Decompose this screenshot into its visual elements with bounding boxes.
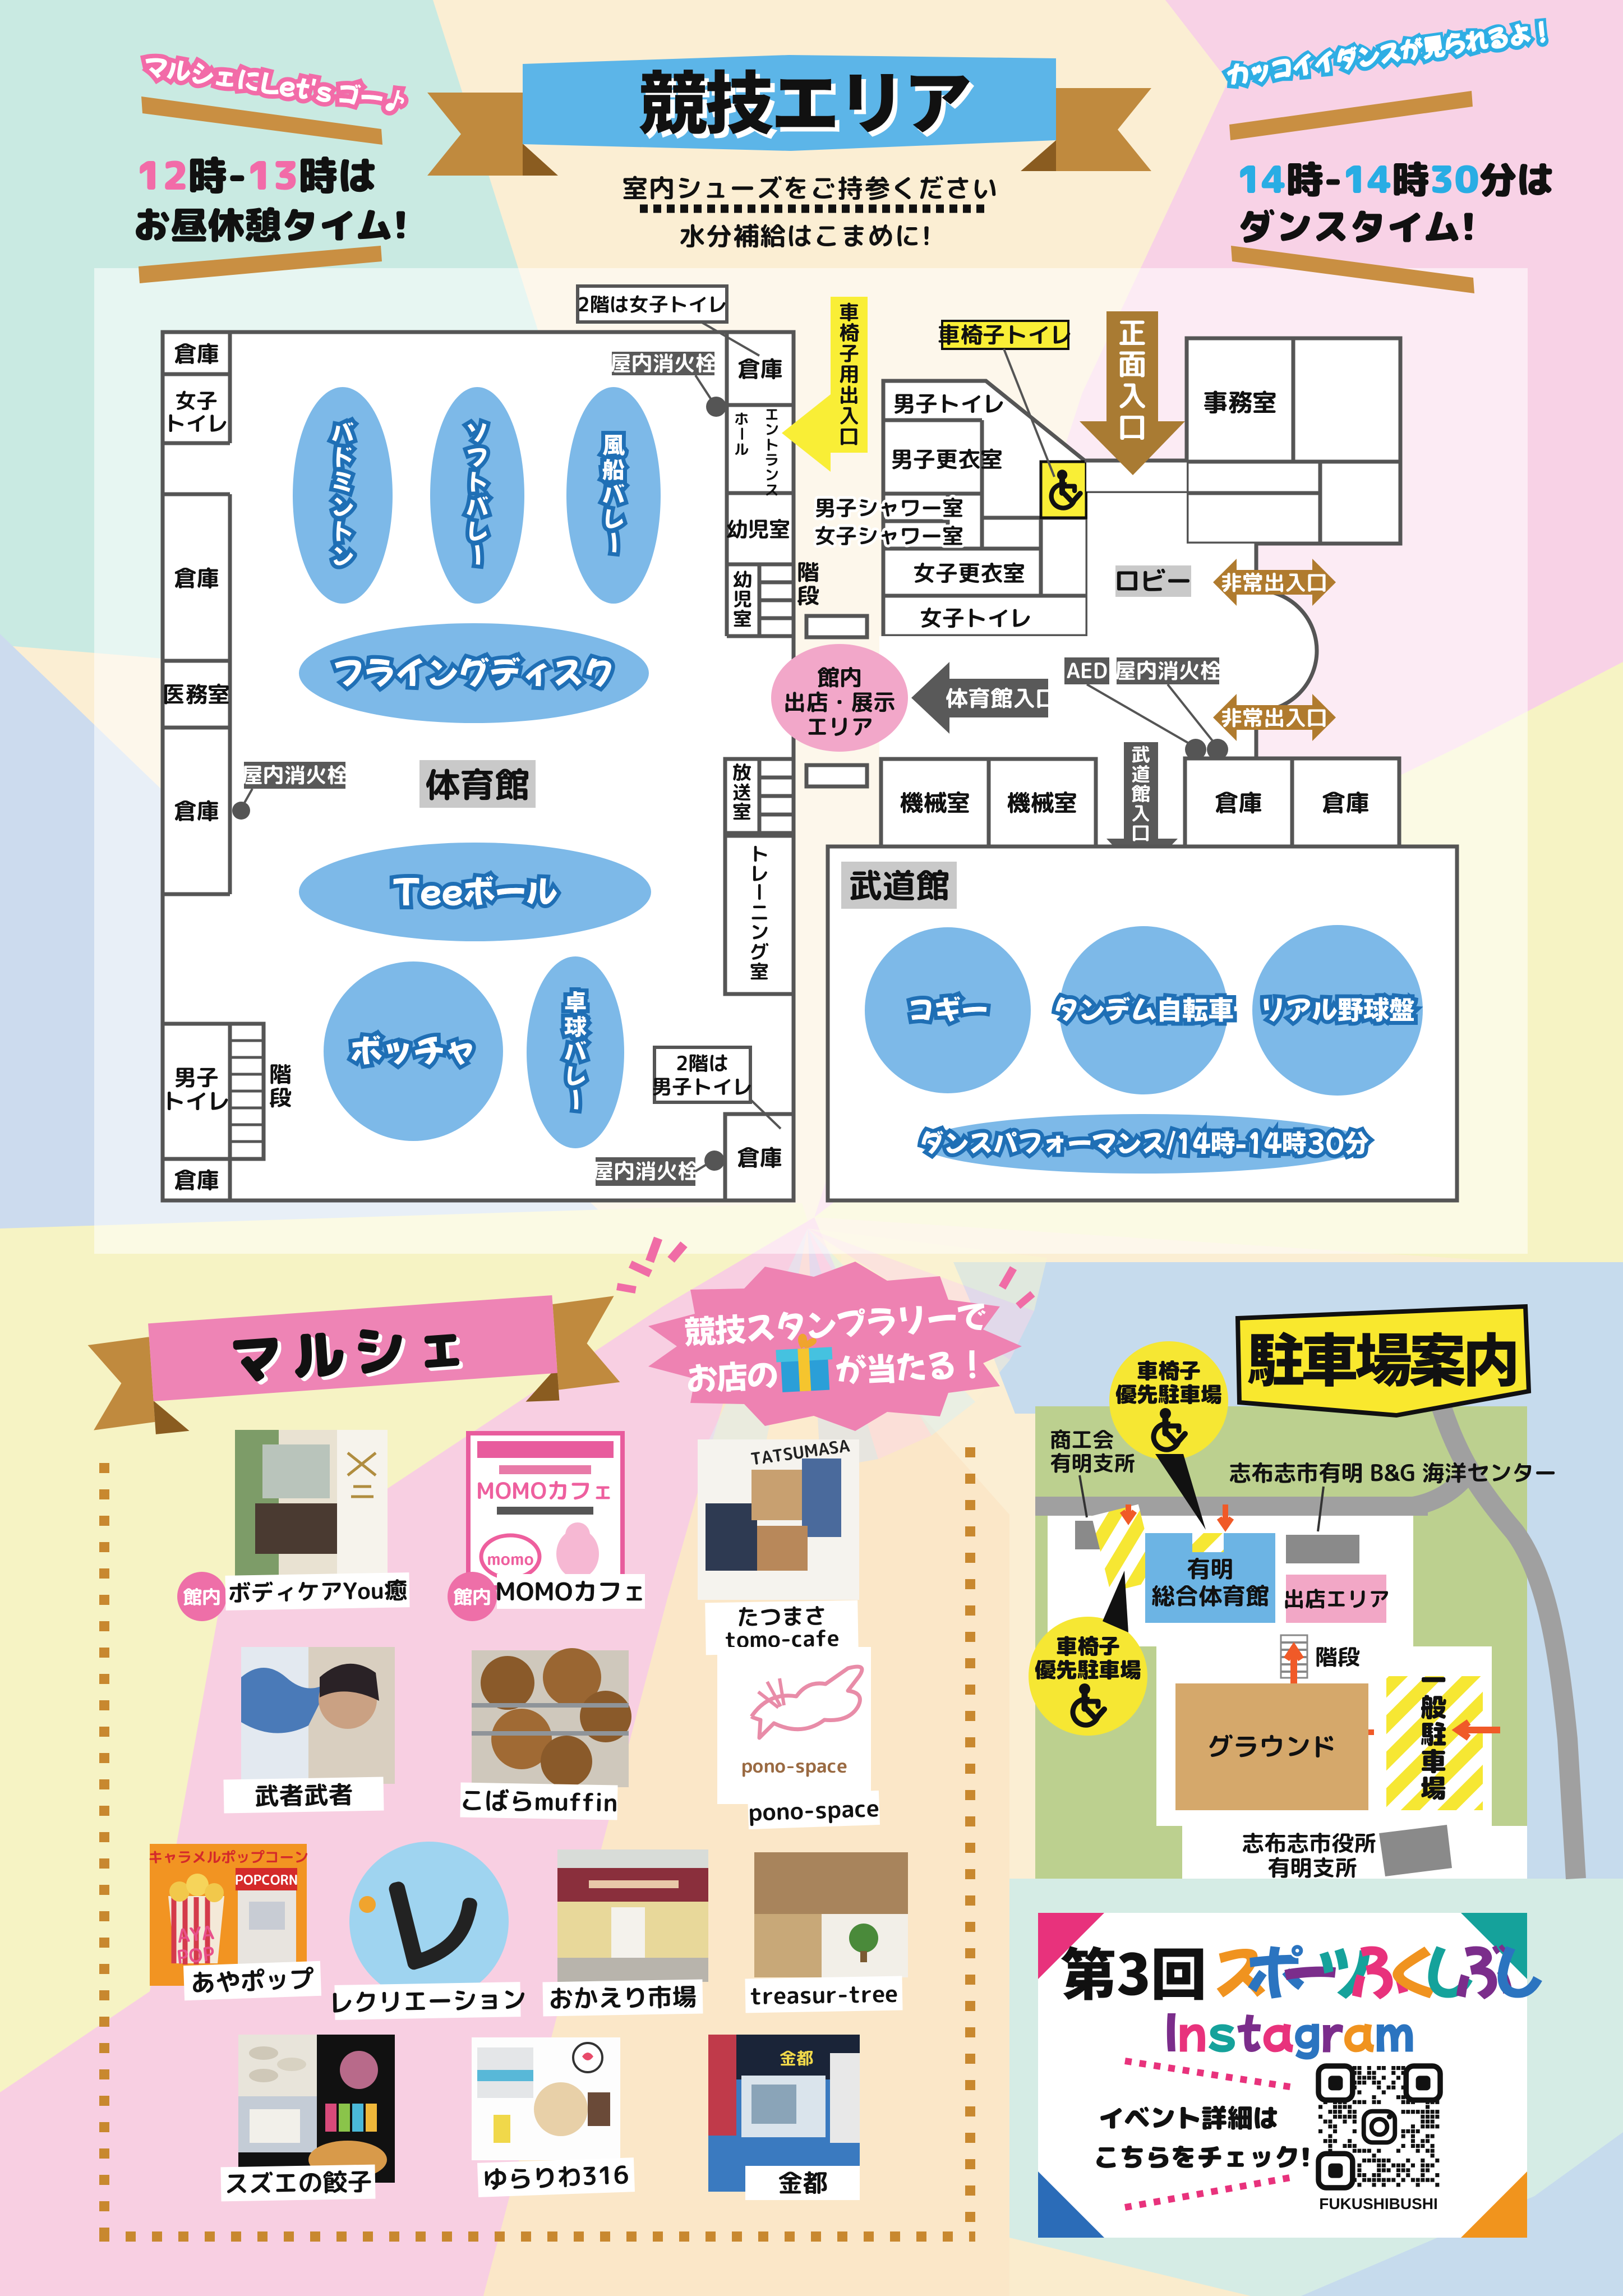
svg-text:ー: ー	[463, 544, 495, 566]
svg-text:館内: 館内	[453, 1583, 491, 1610]
svg-text:段: 段	[269, 1082, 292, 1113]
svg-text:ス: ス	[764, 480, 779, 500]
svg-text:体育館: 体育館	[425, 760, 529, 808]
svg-text:女子トイレ: 女子トイレ	[920, 602, 1032, 633]
svg-text:口: 口	[1131, 819, 1150, 846]
svg-text:タンデム自転車: タンデム自転車	[1053, 990, 1234, 1027]
svg-text:男子トイレ: 男子トイレ	[893, 388, 1005, 419]
svg-text:機械室: 機械室	[1007, 786, 1077, 819]
svg-text:倉庫: 倉庫	[174, 338, 219, 369]
svg-text:イベント詳細は: イベント詳細は	[1098, 2100, 1279, 2136]
svg-text:こちらをチェック!: こちらをチェック!	[1094, 2139, 1311, 2175]
svg-text:POPCORN: POPCORN	[235, 1870, 298, 1889]
svg-text:ゆらりわ316: ゆらりわ316	[482, 2157, 629, 2197]
svg-text:女子シャワー室: 女子シャワー室	[814, 521, 963, 551]
svg-text:屋内消火栓: 屋内消火栓	[241, 760, 348, 790]
svg-text:エリア: エリア	[806, 711, 873, 742]
svg-text:女子更衣室: 女子更衣室	[913, 557, 1025, 588]
svg-text:し: し	[1490, 1927, 1548, 2012]
svg-text:AED: AED	[1066, 656, 1108, 685]
svg-text:屋内消火栓: 屋内消火栓	[592, 1156, 699, 1186]
svg-text:室: 室	[750, 958, 769, 984]
svg-text:倉庫: 倉庫	[737, 1142, 782, 1173]
svg-text:有明支所: 有明支所	[1267, 1852, 1357, 1883]
svg-text:金都: 金都	[780, 2046, 813, 2070]
svg-text:リアル野球盤: リアル野球盤	[1260, 990, 1415, 1027]
svg-text:グラウンド: グラウンド	[1207, 1728, 1336, 1764]
svg-text:Teeボール: Teeボール	[393, 867, 558, 913]
svg-text:段: 段	[797, 579, 819, 611]
svg-text:事務室: 事務室	[1203, 385, 1277, 420]
svg-text:2階は女子トイレ: 2階は女子トイレ	[577, 291, 727, 318]
svg-text:室: 室	[732, 798, 751, 825]
svg-text:倉庫: 倉庫	[174, 1164, 219, 1195]
svg-text:男子トイレ: 男子トイレ	[652, 1072, 753, 1101]
svg-text:Instagram: Instagram	[1165, 1999, 1415, 2062]
svg-text:キャラメルポップコーン: キャラメルポップコーン	[148, 1847, 308, 1867]
svg-text:非常出入口: 非常出入口	[1221, 703, 1327, 733]
svg-text:が当たる！: が当たる！	[834, 1340, 988, 1393]
svg-text:FUKUSHIBUSHI: FUKUSHIBUSHI	[1319, 2195, 1438, 2212]
svg-text:レ: レ	[602, 501, 625, 534]
svg-text:treasur-tree: treasur-tree	[749, 1977, 898, 2013]
svg-text:場: 場	[1421, 1770, 1446, 1806]
svg-text:機械室: 機械室	[900, 786, 970, 819]
svg-text:幼児室: 幼児室	[726, 514, 790, 544]
svg-text:有明支所: 有明支所	[1050, 1448, 1135, 1478]
svg-text:倉庫: 倉庫	[174, 795, 219, 826]
svg-text:ー: ー	[599, 531, 631, 554]
svg-text:武道館: 武道館	[849, 862, 949, 909]
svg-text:あやポップ: あやポップ	[190, 1962, 315, 2000]
svg-text:フライングディスク: フライングディスク	[333, 648, 615, 694]
svg-text:男子シャワー室: 男子シャワー室	[814, 493, 963, 523]
svg-text:倉庫: 倉庫	[1322, 786, 1369, 819]
svg-text:ボッチャ: ボッチャ	[351, 1027, 476, 1072]
svg-text:倉庫: 倉庫	[737, 353, 782, 384]
svg-text:倉庫: 倉庫	[1215, 786, 1262, 819]
svg-text:トイレ: トイレ	[164, 408, 228, 438]
svg-text:こばらmuffin: こばらmuffin	[460, 1783, 618, 1820]
svg-text:コギー: コギー	[907, 988, 988, 1028]
svg-text:お店の: お店の	[685, 1350, 778, 1400]
svg-text:室: 室	[733, 605, 752, 632]
svg-text:pono-space: pono-space	[748, 1792, 879, 1829]
svg-text:レ: レ	[564, 1059, 587, 1091]
svg-text:武者武者: 武者武者	[254, 1777, 353, 1813]
svg-text:スズエの餃子: スズエの餃子	[224, 2165, 372, 2202]
svg-text:口: 口	[1118, 406, 1147, 447]
svg-text:おかえり市場: おかえり市場	[548, 1980, 697, 2017]
svg-text:momo: momo	[487, 1547, 534, 1571]
svg-text:倉庫: 倉庫	[174, 562, 219, 593]
svg-text:MOMOカフェ: MOMOカフェ	[495, 1575, 647, 1609]
svg-text:ダンスパフォーマンス/14時-14時30分: ダンスパフォーマンス/14時-14時30分	[919, 1124, 1369, 1159]
svg-text:ロビー: ロビー	[1114, 563, 1192, 599]
svg-text:優先駐車場: 優先駐車場	[1035, 1655, 1141, 1685]
svg-text:優先駐車場: 優先駐車場	[1115, 1379, 1222, 1409]
svg-text:出店エリア: 出店エリア	[1283, 1584, 1390, 1614]
svg-text:pono-space: pono-space	[741, 1752, 847, 1779]
svg-text:男子更衣室: 男子更衣室	[891, 443, 1003, 475]
svg-text:階段: 階段	[1315, 1641, 1360, 1672]
svg-text:志布志市有明 B&G 海洋センター: 志布志市有明 B&G 海洋センター	[1229, 1457, 1557, 1488]
svg-text:ー: ー	[561, 1088, 593, 1111]
svg-text:口: 口	[839, 422, 859, 450]
svg-text:館内: 館内	[183, 1583, 221, 1610]
svg-text:レクリエーション: レクリエーション	[329, 1982, 527, 2020]
svg-text:屋内消火栓: 屋内消火栓	[610, 348, 716, 378]
svg-text:非常出入口: 非常出入口	[1221, 568, 1327, 597]
svg-text:トイレ: トイレ	[163, 1085, 230, 1116]
svg-text:車椅子トイレ: 車椅子トイレ	[938, 319, 1072, 350]
svg-text:ン: ン	[331, 539, 354, 571]
svg-text:ボディケアYou癒: ボディケアYou癒	[228, 1574, 408, 1609]
svg-text:医務室: 医務室	[163, 678, 230, 710]
svg-text:駐車場案内: 駐車場案内	[1247, 1315, 1516, 1398]
svg-text:体育館入口: 体育館入口	[946, 682, 1058, 714]
svg-text:レ: レ	[466, 514, 488, 546]
svg-text:MOMOカフェ: MOMOカフェ	[476, 1475, 614, 1506]
svg-text:金都: 金都	[778, 2166, 827, 2200]
svg-text:総合体育館: 総合体育館	[1151, 1580, 1269, 1612]
svg-text:ル: ル	[734, 439, 749, 459]
svg-text:屋内消火栓: 屋内消火栓	[1114, 656, 1221, 685]
